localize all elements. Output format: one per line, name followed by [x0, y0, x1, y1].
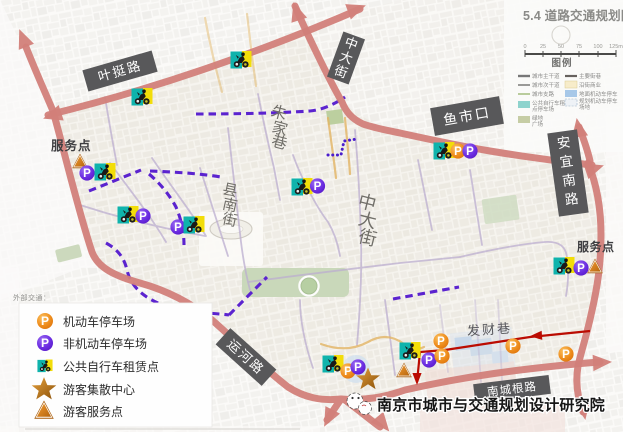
svg-text:发财巷: 发财巷	[467, 320, 513, 338]
svg-text:主要街巷: 主要街巷	[579, 72, 602, 80]
svg-text:路: 路	[564, 191, 580, 208]
svg-text:点停车场: 点停车场	[532, 105, 555, 113]
svg-text:游客集散中心: 游客集散中心	[63, 382, 135, 397]
svg-text:75: 75	[576, 44, 582, 50]
svg-text:125m: 125m	[609, 44, 623, 50]
svg-text:绿地: 绿地	[532, 114, 544, 122]
svg-text:地面机动车停车: 地面机动车停车	[579, 90, 618, 98]
svg-text:规划机动车停车: 规划机动车停车	[579, 97, 618, 105]
svg-text:安: 安	[556, 134, 571, 151]
svg-text:城市支路: 城市支路	[532, 90, 555, 98]
svg-text:机动车停车场: 机动车停车场	[63, 314, 135, 329]
svg-text:城市次干道: 城市次干道	[532, 81, 560, 89]
svg-text:场地: 场地	[579, 103, 591, 111]
svg-text:服务点: 服务点	[577, 239, 615, 254]
svg-text:南京市城市与交通规划设计研究院: 南京市城市与交通规划设计研究院	[377, 396, 605, 414]
svg-text:服务点: 服务点	[51, 138, 92, 153]
svg-text:P: P	[41, 314, 49, 328]
svg-text:外部交通：: 外部交通：	[13, 293, 51, 302]
svg-text:0: 0	[523, 44, 526, 50]
svg-text:广场: 广场	[532, 120, 544, 128]
svg-text:图例: 图例	[551, 57, 572, 69]
svg-text:城市主干道: 城市主干道	[532, 72, 560, 80]
svg-text:P: P	[41, 336, 49, 350]
svg-text:沿街商业: 沿街商业	[579, 81, 602, 89]
svg-text:宜: 宜	[559, 153, 574, 170]
svg-text:5.4 道路交通规划图: 5.4 道路交通规划图	[523, 8, 623, 23]
svg-text:100: 100	[593, 44, 602, 50]
svg-text:公共自行车租赁点: 公共自行车租赁点	[63, 359, 159, 374]
svg-text:游客服务点: 游客服务点	[63, 404, 123, 419]
svg-text:非机动车停车场: 非机动车停车场	[63, 336, 147, 351]
svg-text:南: 南	[561, 172, 576, 189]
svg-text:25: 25	[540, 44, 546, 50]
svg-text:50: 50	[558, 44, 564, 50]
